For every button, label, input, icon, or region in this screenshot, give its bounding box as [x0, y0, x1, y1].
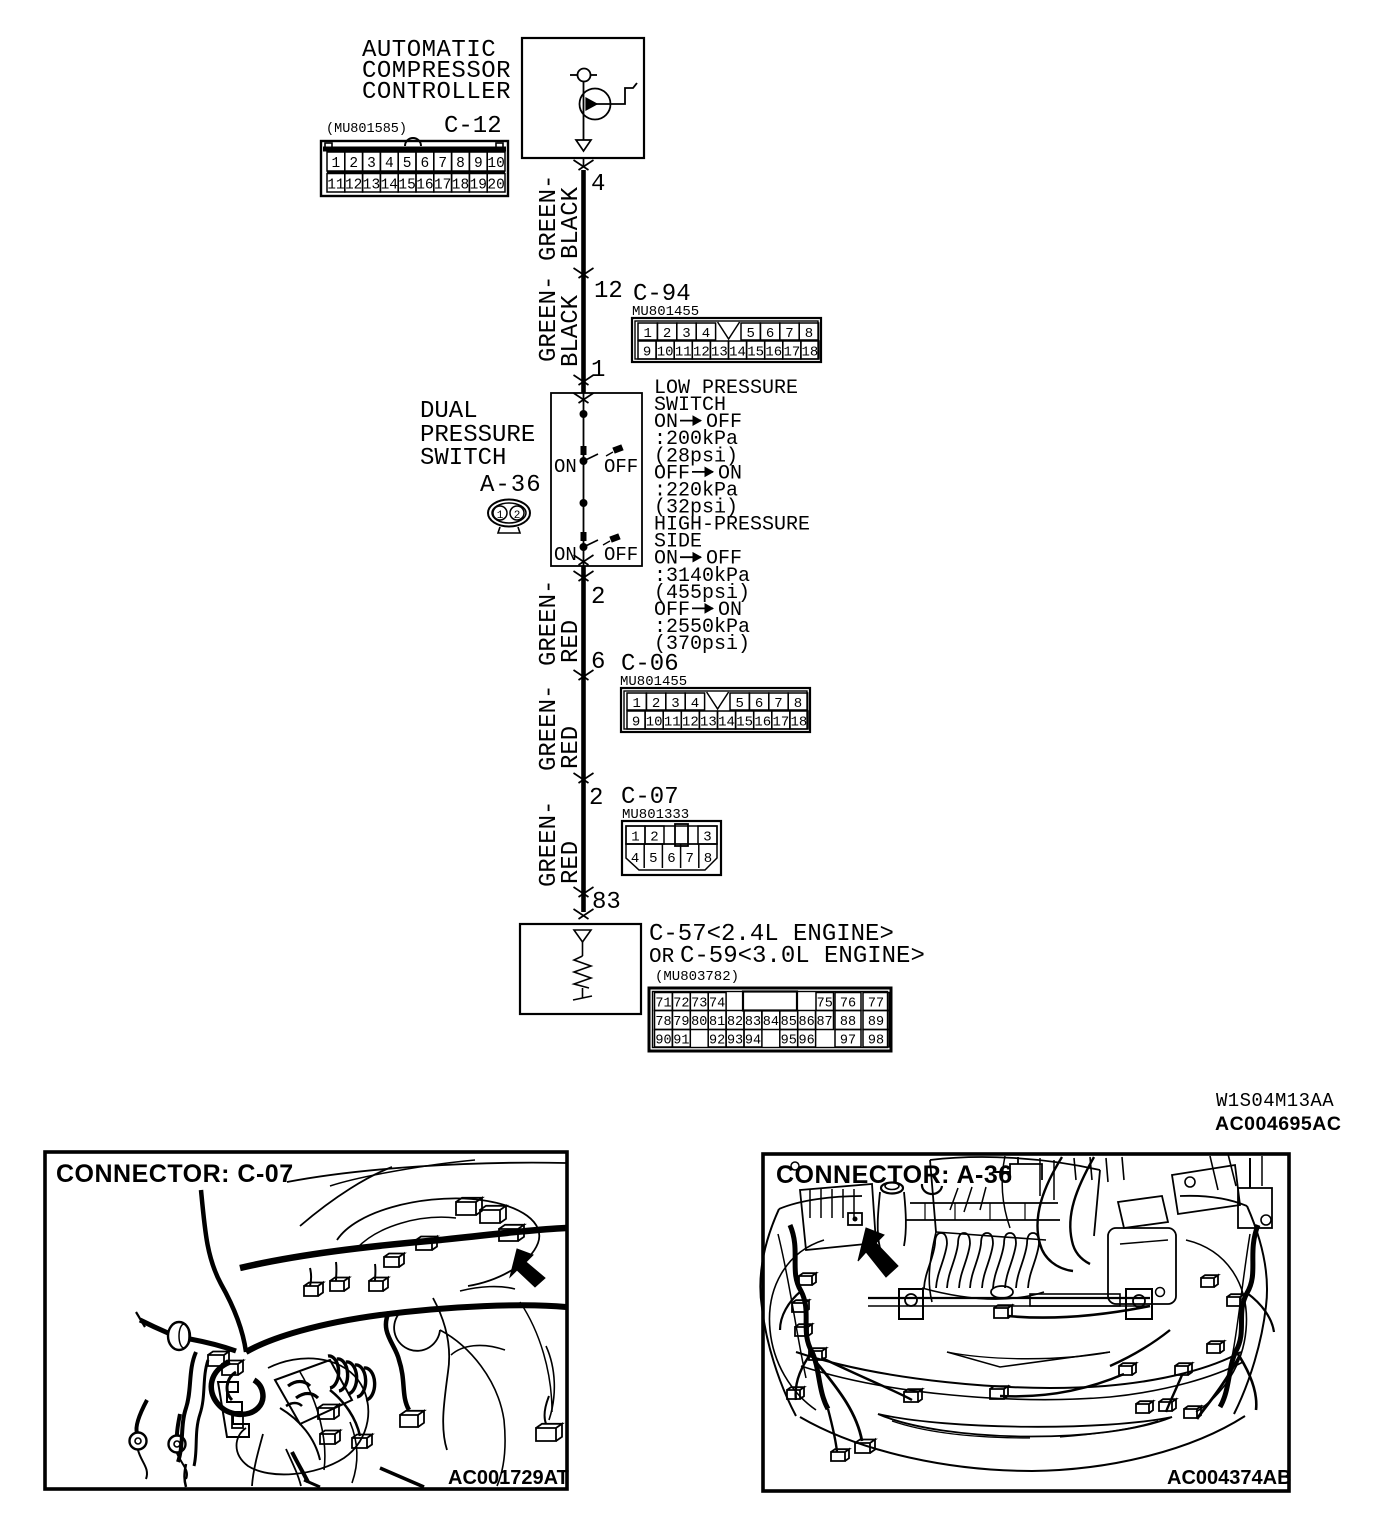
svg-text:11: 11: [675, 345, 692, 361]
svg-text:8: 8: [805, 326, 813, 342]
svg-text:7: 7: [438, 156, 447, 172]
svg-text:6: 6: [755, 696, 763, 712]
svg-text:4: 4: [591, 171, 605, 198]
svg-text:16: 16: [754, 715, 771, 731]
svg-text:12: 12: [693, 345, 710, 361]
svg-text:5: 5: [746, 326, 754, 342]
svg-text:RED: RED: [558, 841, 585, 884]
svg-text:12: 12: [594, 278, 623, 305]
svg-text:AC004695AC: AC004695AC: [1215, 1113, 1341, 1135]
svg-text:1: 1: [497, 510, 504, 522]
svg-text:5: 5: [735, 696, 743, 712]
svg-text:14: 14: [381, 178, 398, 194]
svg-text:77: 77: [868, 997, 884, 1012]
svg-text:1: 1: [632, 696, 640, 712]
svg-text:3: 3: [671, 696, 679, 712]
svg-text:18: 18: [791, 715, 808, 731]
svg-text:71: 71: [655, 997, 671, 1012]
svg-text:83: 83: [745, 1015, 761, 1030]
svg-text:8: 8: [794, 696, 802, 712]
svg-text:RED: RED: [558, 726, 585, 769]
svg-text:OFF: OFF: [604, 544, 638, 566]
svg-text:5: 5: [649, 851, 657, 867]
svg-text:16: 16: [416, 178, 433, 194]
svg-text:7: 7: [774, 696, 782, 712]
svg-text:12: 12: [345, 178, 362, 194]
svg-text:9: 9: [474, 156, 483, 172]
svg-text:17: 17: [772, 715, 789, 731]
svg-text:4: 4: [385, 156, 394, 172]
svg-text:17: 17: [783, 345, 800, 361]
svg-text:9: 9: [643, 345, 651, 361]
svg-text:6: 6: [667, 851, 675, 867]
svg-text:C-12: C-12: [444, 113, 502, 140]
svg-text:80: 80: [691, 1015, 707, 1030]
svg-text:18: 18: [452, 178, 469, 194]
svg-text:84: 84: [763, 1015, 779, 1030]
svg-text:BLACK: BLACK: [558, 186, 585, 259]
svg-text:8: 8: [456, 156, 465, 172]
svg-text:72: 72: [673, 997, 689, 1012]
svg-text:13: 13: [363, 178, 380, 194]
svg-text:89: 89: [868, 1015, 884, 1030]
svg-text:DUAL: DUAL: [420, 398, 478, 425]
svg-text:4: 4: [691, 696, 699, 712]
svg-text:2: 2: [591, 584, 605, 611]
svg-text:87: 87: [816, 1015, 832, 1030]
svg-text:17: 17: [434, 178, 451, 194]
svg-text:2: 2: [349, 156, 358, 172]
svg-text:RED: RED: [558, 620, 585, 663]
svg-text:79: 79: [673, 1015, 689, 1030]
svg-text:C-59<3.0L ENGINE>: C-59<3.0L ENGINE>: [680, 943, 925, 970]
svg-text:15: 15: [736, 715, 753, 731]
svg-text:81: 81: [709, 1015, 725, 1030]
svg-text:75: 75: [817, 997, 833, 1012]
svg-text:94: 94: [745, 1034, 761, 1049]
svg-text:14: 14: [729, 345, 746, 361]
svg-text:83: 83: [592, 889, 621, 916]
svg-text:82: 82: [727, 1015, 743, 1030]
svg-text:AC001729AT: AC001729AT: [448, 1467, 569, 1489]
svg-text:CONNECTOR: A-36: CONNECTOR: A-36: [776, 1161, 1013, 1189]
svg-text:2: 2: [663, 326, 671, 342]
svg-text:95: 95: [781, 1034, 797, 1049]
svg-text:6: 6: [766, 326, 774, 342]
svg-text:CONTROLLER: CONTROLLER: [362, 79, 511, 106]
svg-text:86: 86: [799, 1015, 815, 1030]
svg-text:91: 91: [673, 1034, 689, 1049]
svg-text:78: 78: [655, 1015, 671, 1030]
svg-text:92: 92: [709, 1034, 725, 1049]
svg-text:11: 11: [664, 715, 681, 731]
svg-text:97: 97: [840, 1034, 856, 1049]
svg-text:9: 9: [632, 715, 640, 731]
svg-text:10: 10: [646, 715, 663, 731]
svg-text:13: 13: [711, 345, 728, 361]
svg-text:3: 3: [682, 326, 690, 342]
svg-text:7: 7: [685, 851, 693, 867]
svg-text:19: 19: [470, 178, 487, 194]
svg-text:2: 2: [650, 830, 658, 846]
svg-text:AC004374AB: AC004374AB: [1167, 1467, 1292, 1489]
svg-text:1: 1: [631, 830, 639, 846]
svg-text:ON: ON: [554, 544, 577, 566]
svg-text:18: 18: [802, 345, 819, 361]
svg-text:12: 12: [682, 715, 699, 731]
svg-text:1: 1: [591, 357, 605, 384]
svg-text:90: 90: [655, 1034, 671, 1049]
svg-text:10: 10: [657, 345, 674, 361]
svg-text:76: 76: [840, 997, 856, 1012]
svg-text:5: 5: [403, 156, 412, 172]
svg-text:2: 2: [514, 510, 521, 522]
svg-text:13: 13: [700, 715, 717, 731]
svg-text:3: 3: [703, 830, 711, 846]
svg-text:SWITCH: SWITCH: [420, 445, 506, 472]
svg-text:6: 6: [591, 649, 605, 676]
svg-text:7: 7: [785, 326, 793, 342]
svg-text:20: 20: [487, 178, 504, 194]
svg-text:85: 85: [781, 1015, 797, 1030]
svg-text:3: 3: [367, 156, 376, 172]
svg-text:1: 1: [643, 326, 651, 342]
svg-text:BLACK: BLACK: [558, 294, 585, 367]
svg-text:73: 73: [691, 997, 707, 1012]
svg-text:10: 10: [487, 156, 504, 172]
svg-text:11: 11: [327, 178, 344, 194]
svg-text:14: 14: [718, 715, 735, 731]
svg-text:6: 6: [421, 156, 430, 172]
svg-text:1: 1: [332, 156, 341, 172]
svg-text:4: 4: [631, 851, 639, 867]
svg-text:4: 4: [702, 326, 710, 342]
svg-text:88: 88: [840, 1015, 856, 1030]
svg-text:93: 93: [727, 1034, 743, 1049]
svg-text:96: 96: [799, 1034, 815, 1049]
svg-text:OFF: OFF: [604, 456, 638, 478]
svg-text:ON: ON: [554, 456, 577, 478]
svg-text:15: 15: [398, 178, 415, 194]
svg-text:2: 2: [652, 696, 660, 712]
svg-text:8: 8: [704, 851, 712, 867]
svg-text:W1S04M13AA: W1S04M13AA: [1216, 1090, 1334, 1112]
svg-text:74: 74: [709, 997, 725, 1012]
svg-text:16: 16: [765, 345, 782, 361]
svg-text:A-36: A-36: [480, 472, 542, 499]
svg-text:2: 2: [589, 785, 603, 812]
svg-text:OR: OR: [649, 946, 675, 969]
svg-text:(MU801585): (MU801585): [326, 122, 407, 137]
svg-text:CONNECTOR: C-07: CONNECTOR: C-07: [56, 1160, 294, 1188]
svg-text:15: 15: [747, 345, 764, 361]
svg-text:(MU803782): (MU803782): [655, 969, 739, 985]
svg-text:98: 98: [868, 1034, 884, 1049]
